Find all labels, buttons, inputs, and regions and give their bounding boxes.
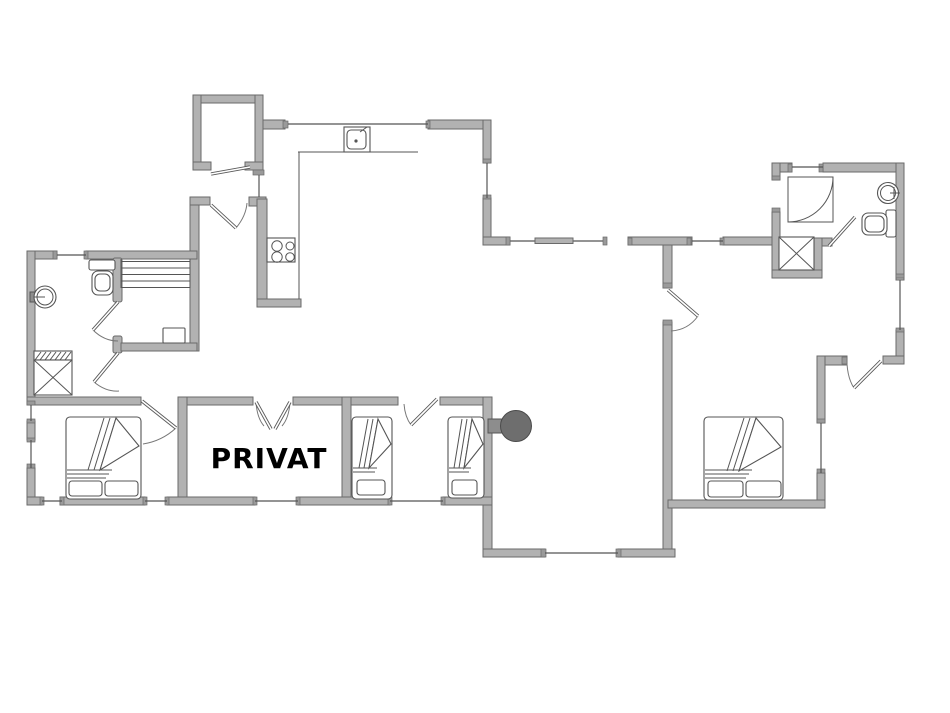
toilet-icon <box>862 210 896 237</box>
pillow <box>105 481 138 496</box>
sauna-door <box>94 353 119 391</box>
double-bed-right <box>704 417 783 500</box>
bathroom-left <box>30 260 115 395</box>
stove-cooktop-icon <box>267 238 295 262</box>
floor-plan-page: PRIVAT <box>0 0 950 713</box>
bedroom-twin-door <box>404 399 437 425</box>
pillow <box>746 481 781 497</box>
shower-tray-icon <box>779 237 814 270</box>
single-bed-2 <box>448 417 484 498</box>
sauna <box>121 259 190 343</box>
kitchen-sink-icon <box>344 127 370 152</box>
sauna-heater-icon <box>163 328 185 343</box>
shower-tray-icon <box>34 351 72 395</box>
pillow <box>357 480 385 495</box>
sliding-door <box>506 237 607 245</box>
terrace-door <box>847 361 881 388</box>
bathroom-right <box>779 177 900 270</box>
kitchen <box>267 127 418 299</box>
sauna-benches-icon <box>121 259 190 288</box>
bedroom-left-door <box>142 401 176 444</box>
pillow <box>452 480 477 495</box>
bathroom-left-door <box>93 302 118 341</box>
pillow <box>708 481 743 497</box>
pillow <box>69 481 102 496</box>
floor-plan: PRIVAT <box>0 0 950 713</box>
private-room-double-door <box>256 402 290 429</box>
room-label-privat: PRIVAT <box>211 442 328 475</box>
wood-stove-icon <box>488 411 532 442</box>
corner-shower-icon <box>788 177 833 222</box>
porch-door <box>211 167 250 174</box>
double-bed-left <box>66 417 141 499</box>
toilet-icon <box>89 260 115 295</box>
single-bed-1 <box>352 417 392 499</box>
hall-door <box>211 203 247 228</box>
